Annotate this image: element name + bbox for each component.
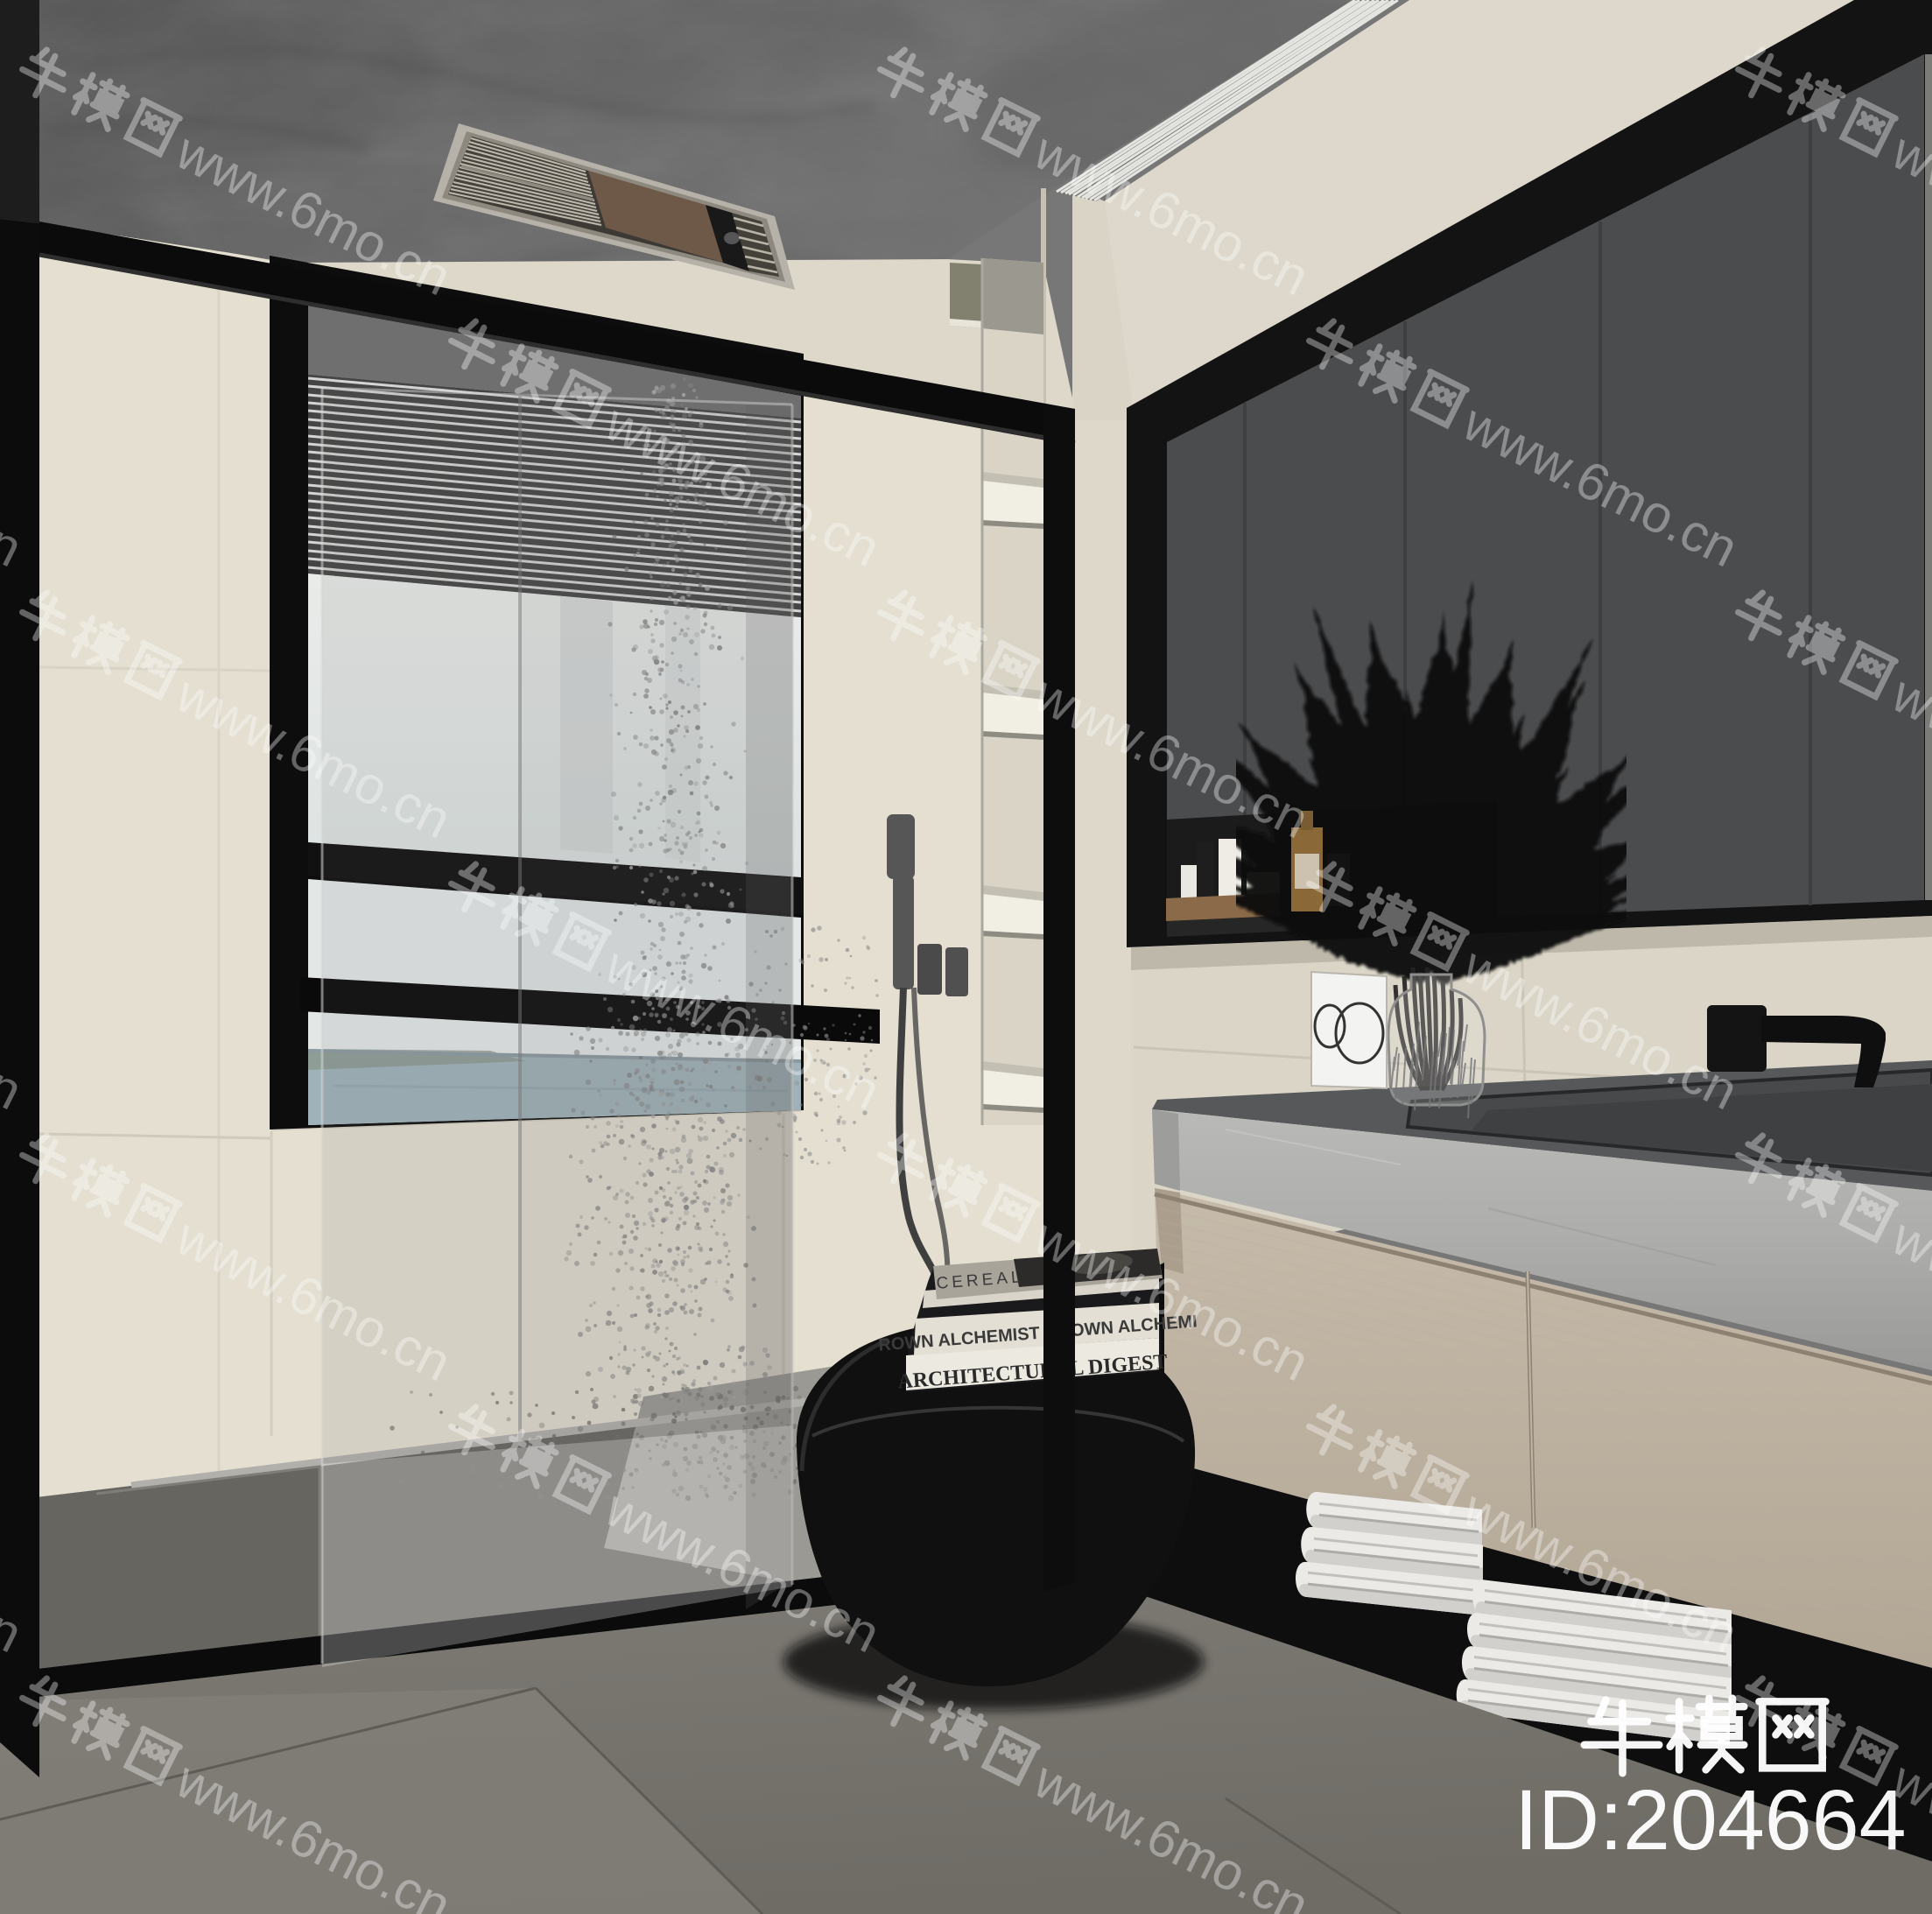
svg-text:ID:204664: ID:204664 — [1514, 1772, 1907, 1868]
